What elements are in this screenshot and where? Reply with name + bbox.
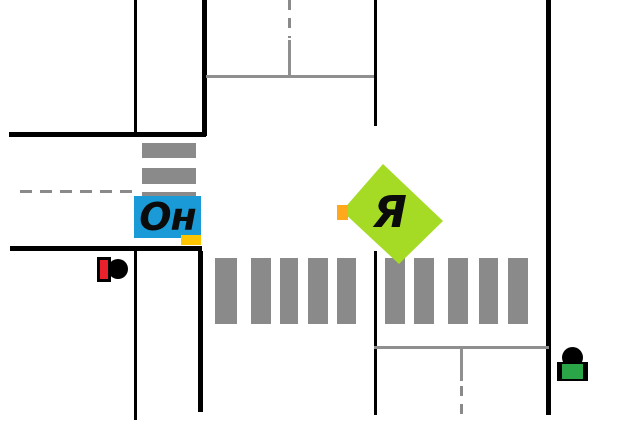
my-car-turn-indicator [337,205,348,220]
other-car-label: Он [139,198,196,236]
crosswalk-stripe [414,258,434,324]
center-line-top-road-dashed [288,0,291,38]
road-edge-top-left-inner-vertical [134,0,137,134]
road-edge-top-center-thin-vertical [374,0,377,126]
crosswalk-stripe [215,258,237,324]
center-line-left-road-dashed [20,190,134,193]
road-edge-right-thick-vertical [546,0,551,415]
crosswalk-lower-road [0,258,640,324]
center-line-top-road-solid [288,40,291,76]
crosswalk-stripe [251,258,271,324]
crosswalk-stripe [479,258,498,324]
crosswalk-stripe [337,258,356,324]
other-car-turn-indicator [181,235,201,245]
my-car: Я [342,164,443,264]
traffic-intersection-diagram: Он Я [0,0,640,448]
crosswalk-stripe [508,258,528,324]
pedestrian-body-icon [557,362,588,381]
my-car-label: Я [373,191,407,235]
crosswalk-stripe [142,168,196,184]
crosswalk-stripe [280,258,298,324]
other-car: Он [134,196,201,238]
crosswalk-stripe [385,258,405,324]
traffic-light-housing-icon [108,259,128,279]
crosswalk-stripe [448,258,468,324]
road-edge-left-bottom-horizontal [10,246,202,251]
crosswalk-upper-left [142,0,196,210]
crosswalk-stripe [142,143,196,158]
crosswalk-stripe [308,258,328,324]
center-line-bottom-road-solid [460,348,463,381]
road-edge-top-left-thick-vertical [202,0,207,136]
center-line-bottom-road-dashed [460,386,463,414]
